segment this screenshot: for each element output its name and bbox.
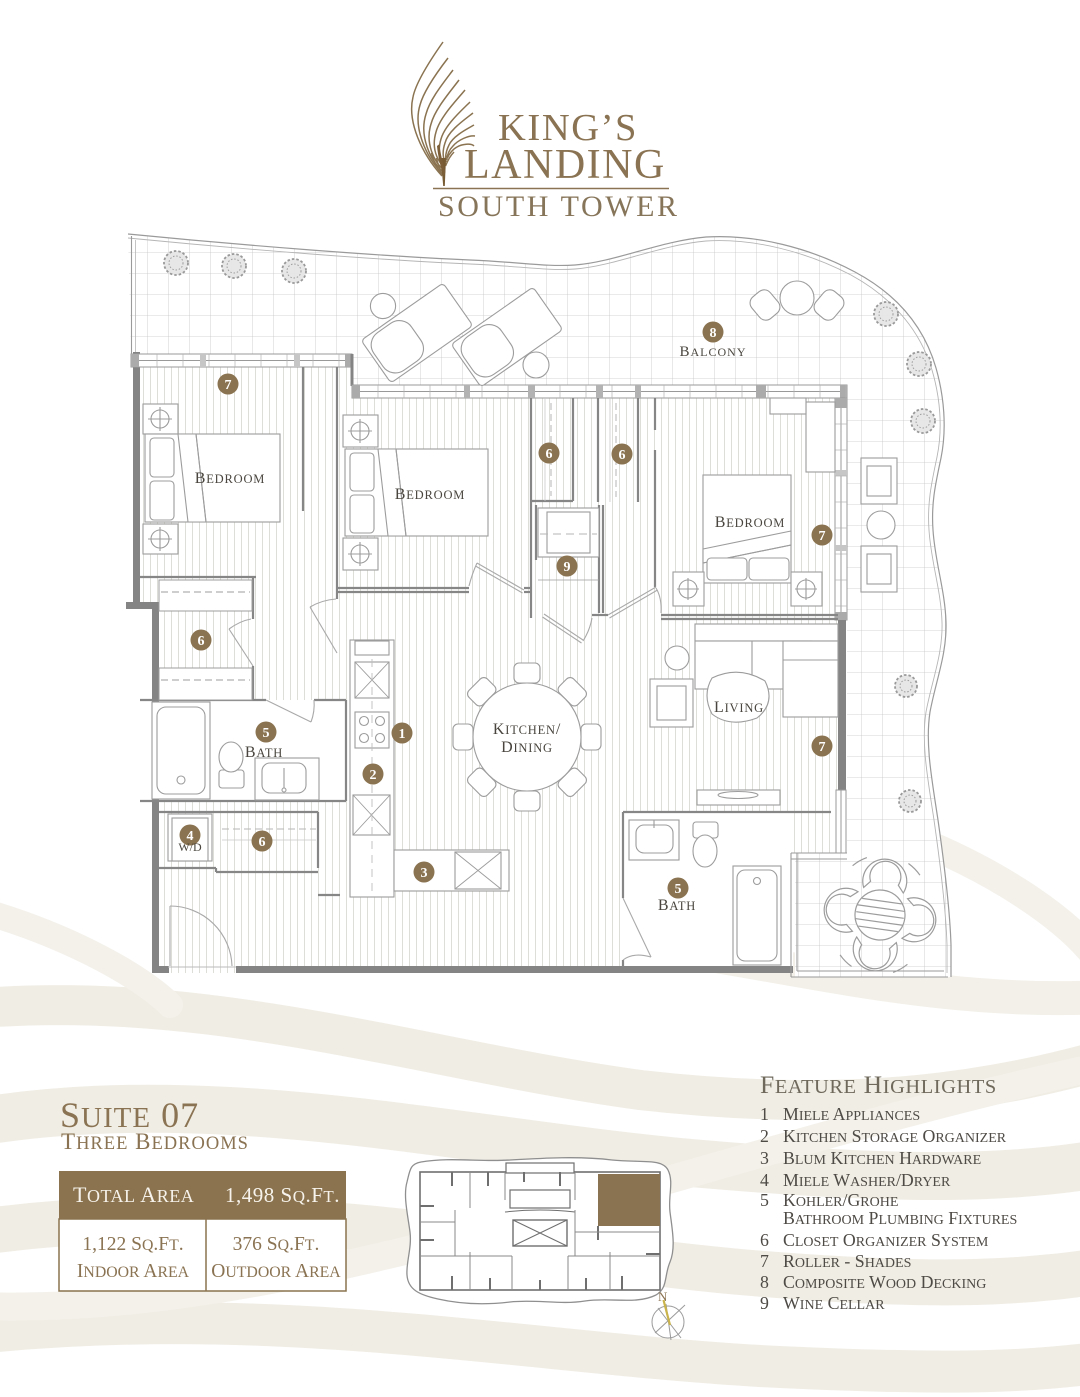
svg-text:BEDROOM: BEDROOM (715, 514, 785, 531)
svg-text:1: 1 (760, 1104, 769, 1124)
svg-text:8: 8 (760, 1272, 769, 1292)
svg-text:3: 3 (760, 1148, 769, 1168)
svg-text:7: 7 (760, 1251, 769, 1271)
svg-text:INDOOR AREA: INDOOR AREA (77, 1261, 190, 1282)
svg-text:KITCHEN/: KITCHEN/ (493, 721, 561, 738)
svg-text:9: 9 (760, 1293, 769, 1313)
svg-text:LIVING: LIVING (714, 699, 764, 716)
svg-text:TOTAL AREA: TOTAL AREA (73, 1182, 194, 1207)
svg-text:1,122 SQ.FT.: 1,122 SQ.FT. (82, 1234, 183, 1255)
svg-text:376 SQ.FT.: 376 SQ.FT. (233, 1234, 320, 1255)
svg-text:6: 6 (198, 634, 205, 649)
svg-text:OUTDOOR AREA: OUTDOOR AREA (211, 1261, 341, 1282)
svg-text:BATH: BATH (658, 897, 696, 914)
svg-text:W/D: W/D (178, 840, 202, 854)
svg-text:6: 6 (760, 1230, 769, 1250)
svg-text:SOUTH TOWER: SOUTH TOWER (438, 190, 680, 223)
svg-text:7: 7 (225, 378, 232, 393)
svg-text:7: 7 (819, 740, 826, 755)
svg-text:6: 6 (619, 448, 626, 463)
svg-text:BEDROOM: BEDROOM (195, 470, 265, 487)
svg-text:BEDROOM: BEDROOM (395, 486, 465, 503)
svg-text:8: 8 (710, 326, 717, 341)
svg-text:5: 5 (760, 1190, 769, 1210)
svg-text:DINING: DINING (501, 739, 553, 756)
svg-text:7: 7 (819, 529, 826, 544)
svg-text:2: 2 (760, 1126, 769, 1146)
svg-text:5: 5 (263, 726, 270, 741)
svg-text:1: 1 (399, 727, 406, 742)
svg-text:N: N (658, 1289, 668, 1304)
svg-text:CLOSET ORGANIZER SYSTEM: CLOSET ORGANIZER SYSTEM (783, 1230, 989, 1250)
svg-text:4: 4 (760, 1170, 769, 1190)
svg-text:3: 3 (421, 866, 428, 881)
svg-text:1,498 SQ.FT.: 1,498 SQ.FT. (225, 1183, 340, 1207)
svg-text:6: 6 (259, 835, 266, 850)
svg-text:9: 9 (564, 560, 571, 575)
svg-text:BATHROOM PLUMBING FIXTURES: BATHROOM PLUMBING FIXTURES (783, 1208, 1017, 1228)
svg-text:BALCONY: BALCONY (679, 344, 746, 360)
svg-text:5: 5 (675, 882, 682, 897)
svg-text:LANDING: LANDING (464, 142, 666, 188)
svg-text:BATH: BATH (245, 744, 283, 761)
svg-text:2: 2 (370, 768, 377, 783)
svg-text:6: 6 (546, 447, 553, 462)
